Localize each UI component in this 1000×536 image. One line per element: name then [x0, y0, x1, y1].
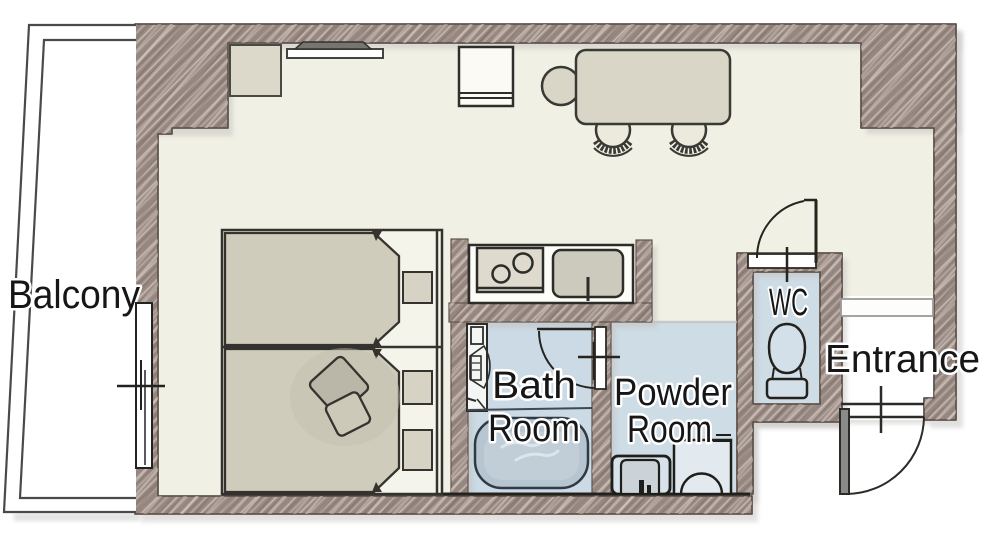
svg-text:Entrance: Entrance	[825, 338, 980, 381]
svg-text:Bath: Bath	[492, 365, 576, 407]
svg-text:Room: Room	[488, 408, 580, 450]
svg-text:Room: Room	[627, 409, 712, 451]
svg-text:Powder: Powder	[614, 372, 732, 414]
svg-text:WC: WC	[769, 282, 808, 324]
svg-text:Balcony: Balcony	[8, 273, 140, 317]
